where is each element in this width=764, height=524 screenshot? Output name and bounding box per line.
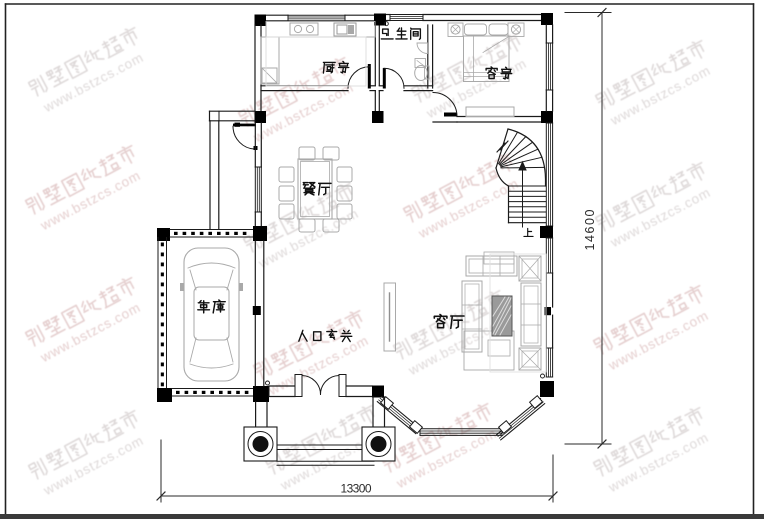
svg-text:13300: 13300 [341, 482, 372, 496]
svg-text:14600: 14600 [583, 209, 597, 250]
